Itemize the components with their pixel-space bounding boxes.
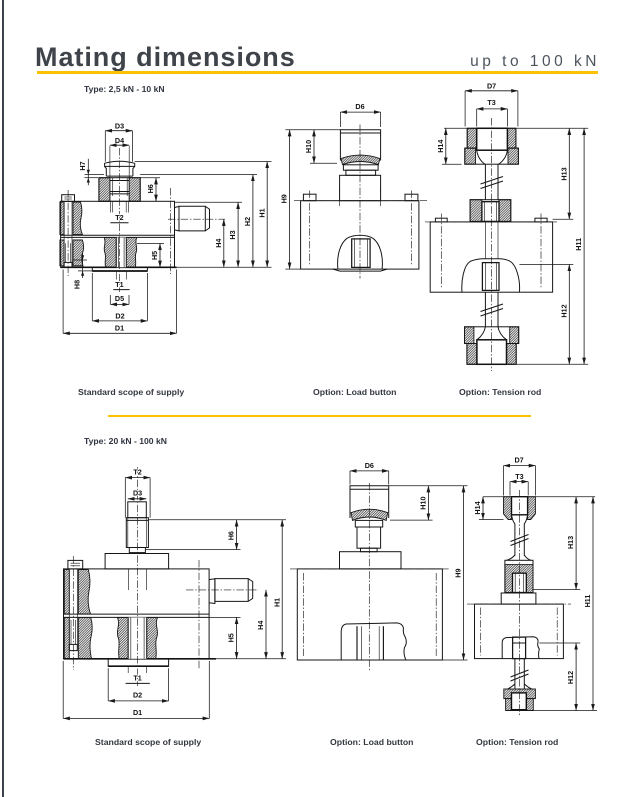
svg-text:H11: H11 <box>574 238 583 251</box>
svg-text:H6: H6 <box>227 531 236 540</box>
svg-text:H14: H14 <box>436 140 445 153</box>
svg-text:H14: H14 <box>473 501 482 514</box>
svg-text:D3: D3 <box>133 489 142 498</box>
svg-text:T2: T2 <box>115 213 123 222</box>
svg-text:D7: D7 <box>487 81 496 90</box>
svg-text:H12: H12 <box>559 304 568 317</box>
svg-text:D6: D6 <box>365 461 374 470</box>
svg-text:D1: D1 <box>133 708 142 717</box>
svg-text:T1: T1 <box>133 673 141 682</box>
svg-text:T3: T3 <box>515 472 523 481</box>
svg-text:D4: D4 <box>115 136 124 145</box>
svg-text:H4: H4 <box>256 621 265 630</box>
svg-text:H5: H5 <box>227 633 236 642</box>
svg-text:H8: H8 <box>72 280 81 289</box>
svg-text:H11: H11 <box>583 595 592 608</box>
svg-text:T1: T1 <box>115 280 123 289</box>
svg-text:H13: H13 <box>566 536 575 549</box>
svg-text:D5: D5 <box>115 294 124 303</box>
svg-text:D1: D1 <box>115 324 124 333</box>
svg-text:T2: T2 <box>133 468 141 477</box>
svg-text:D7: D7 <box>514 456 523 465</box>
svg-text:H10: H10 <box>419 497 428 510</box>
svg-text:H9: H9 <box>454 568 463 577</box>
svg-text:D6: D6 <box>355 102 364 111</box>
svg-text:H10: H10 <box>304 140 313 153</box>
svg-text:D3: D3 <box>115 121 124 130</box>
svg-text:H13: H13 <box>559 167 568 180</box>
svg-text:H4: H4 <box>214 239 223 248</box>
svg-text:H12: H12 <box>566 671 575 684</box>
svg-text:H9: H9 <box>280 194 289 203</box>
svg-text:H6: H6 <box>146 184 155 193</box>
svg-text:D2: D2 <box>115 311 124 320</box>
svg-text:D2: D2 <box>133 691 142 700</box>
svg-text:H5: H5 <box>150 251 159 260</box>
svg-text:T3: T3 <box>487 98 495 107</box>
svg-text:H3: H3 <box>228 230 237 239</box>
svg-text:H2: H2 <box>243 217 252 226</box>
svg-text:H1: H1 <box>272 598 281 607</box>
svg-text:H7: H7 <box>78 161 87 170</box>
svg-text:H1: H1 <box>257 208 266 217</box>
